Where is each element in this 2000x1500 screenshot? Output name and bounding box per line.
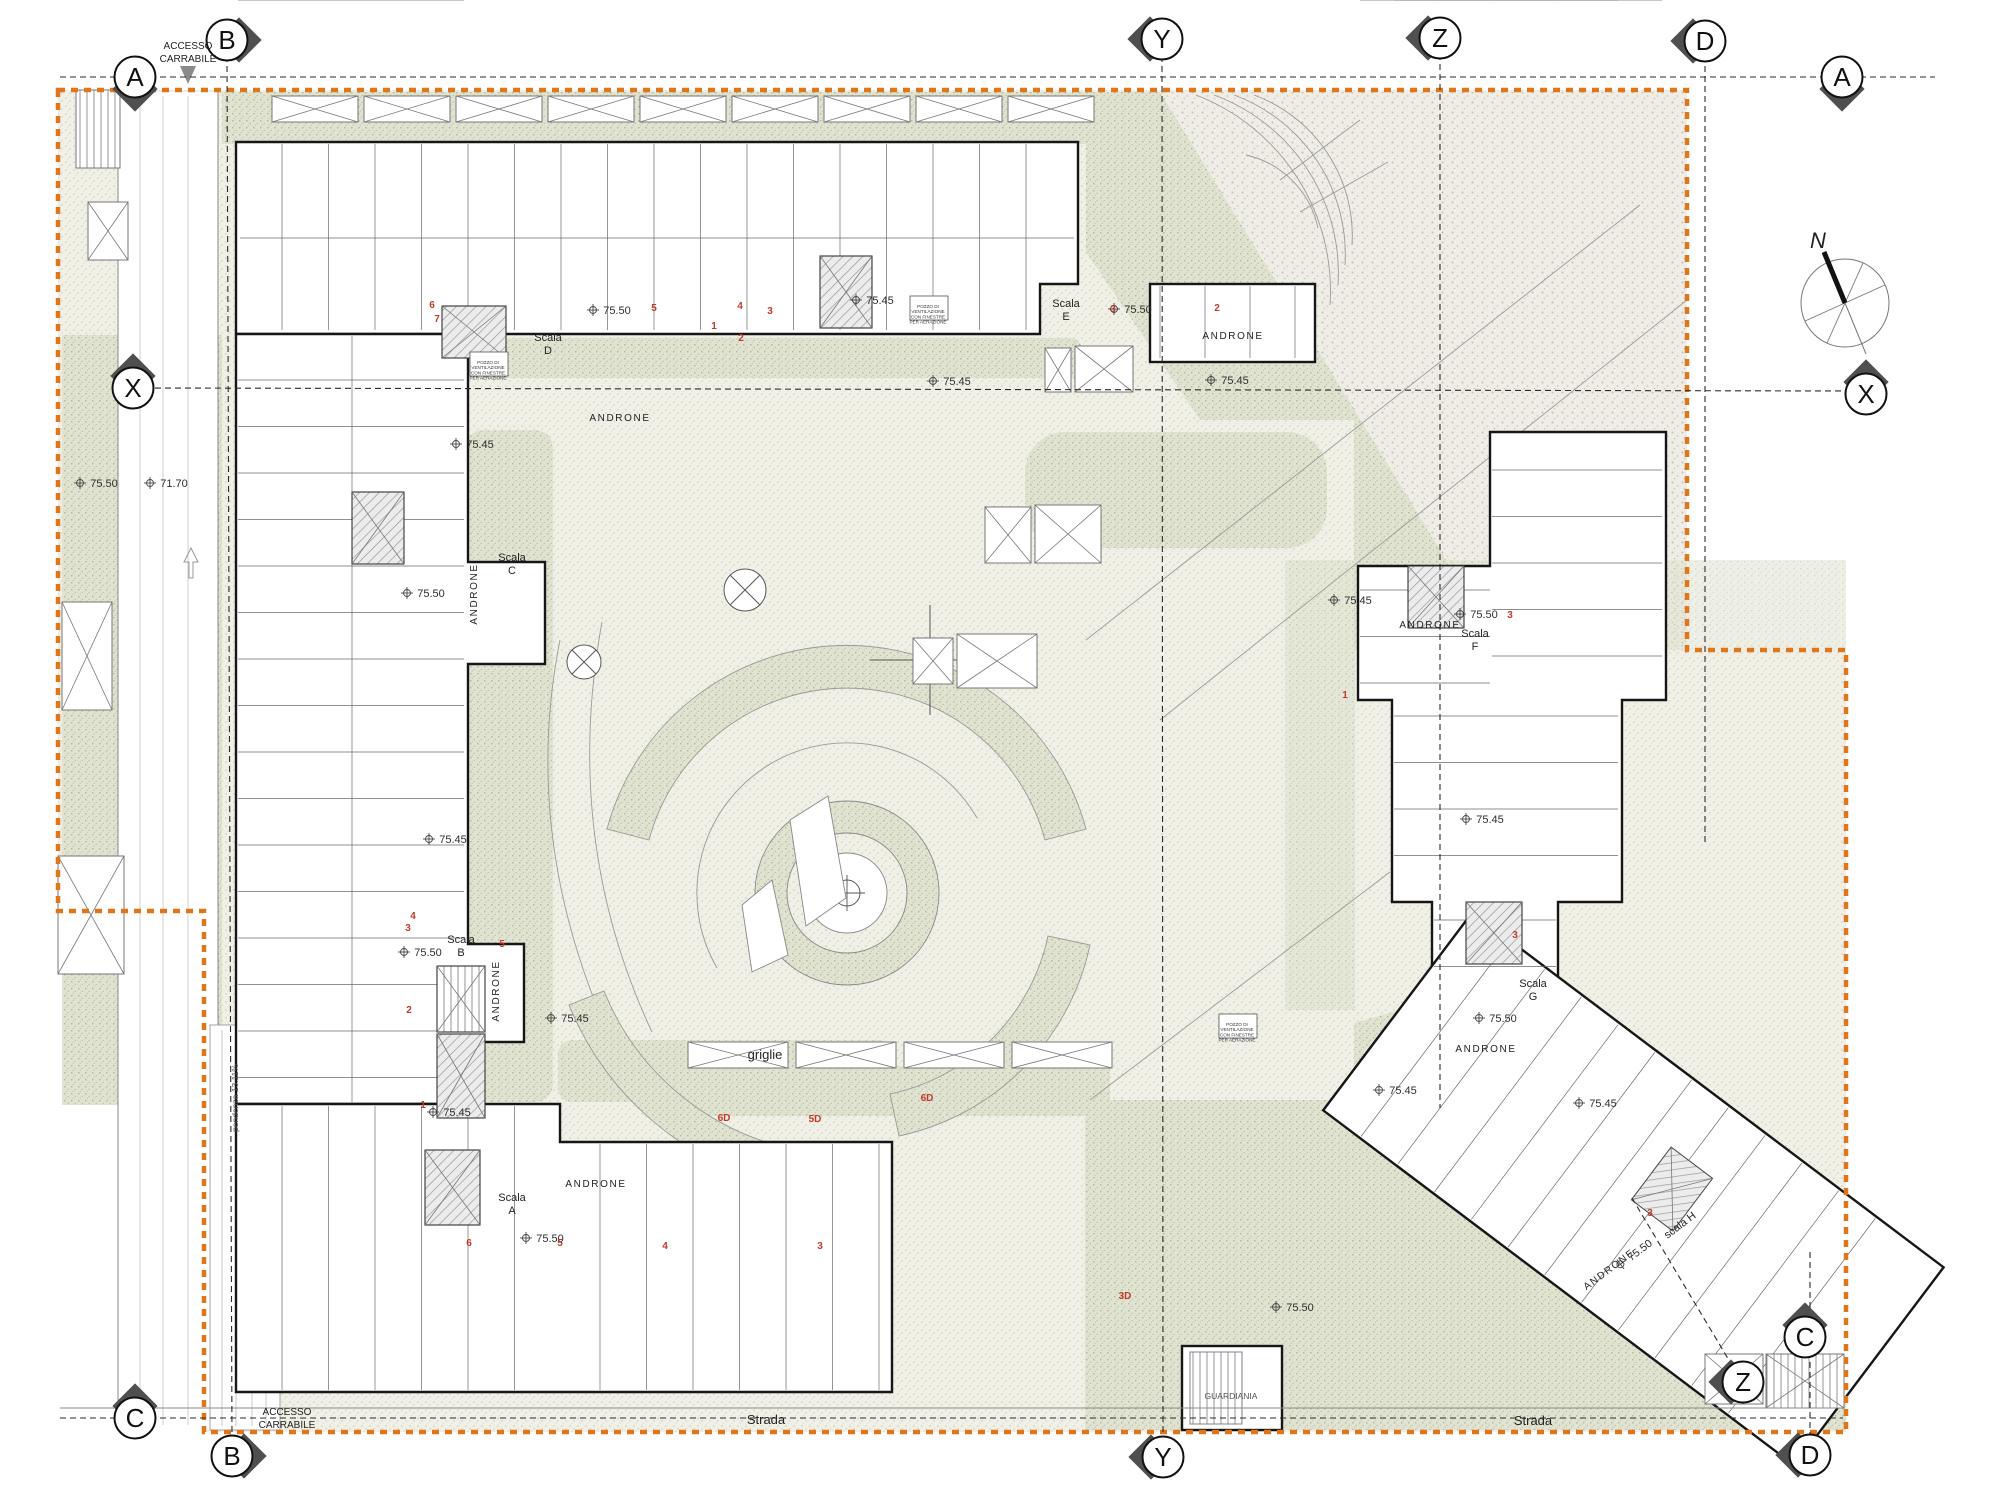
unit-no: 3 xyxy=(1512,930,1518,941)
grille-strip-box xyxy=(732,96,818,122)
vent-grille-box xyxy=(58,856,124,974)
grille-strip-box xyxy=(916,96,1002,122)
unit-no: 4 xyxy=(662,1241,668,1252)
grid-marker-d-top: D xyxy=(1670,18,1725,63)
androne-f: ANDRONE xyxy=(1399,620,1460,631)
unit-no: 1 xyxy=(711,321,717,332)
unit-no: 3 xyxy=(1110,304,1116,315)
grid-marker-letter: A xyxy=(126,62,144,92)
grid-marker-x-right: X xyxy=(1843,359,1888,414)
access-road-west xyxy=(118,66,218,1430)
androne-d: ANDRONE xyxy=(589,413,650,424)
grid-marker-letter: B xyxy=(223,1441,240,1471)
grid-marker-letter: Y xyxy=(1153,24,1170,54)
elev: 75.45 xyxy=(1344,595,1372,607)
androne-g: ANDRONE xyxy=(1455,1044,1516,1055)
grid-marker-letter: D xyxy=(1801,1440,1820,1470)
unit-no: 4 xyxy=(410,911,416,922)
grille-strip-box xyxy=(272,96,358,122)
elev: 75.50 xyxy=(603,305,631,317)
androne-a: ANDRONE xyxy=(565,1179,626,1190)
grid-marker-a-right: A xyxy=(1819,57,1864,112)
grille-strip-box xyxy=(796,1042,896,1068)
grille-strip-box xyxy=(640,96,726,122)
unit-no: 5 xyxy=(651,303,657,314)
elev: 75.45 xyxy=(866,295,894,307)
elev: 75.45 xyxy=(943,376,971,388)
accesso-carrabile-top: ACCESSOCARRABILE xyxy=(160,41,217,65)
unit-no: 6 xyxy=(429,300,435,311)
site-plan-svg: ABYZDAXXCBYZCD ACCESSOCARRABILEACCESSOCA… xyxy=(0,0,2000,1500)
stair-core xyxy=(1408,566,1464,628)
elev: 75.45 xyxy=(1221,375,1249,387)
grid-marker-letter: A xyxy=(1833,62,1851,92)
unit-no: 5 xyxy=(557,1238,563,1249)
strada-label-left: Strada xyxy=(747,1412,786,1427)
elev: 75.50 xyxy=(414,947,442,959)
unit-no: 3 xyxy=(1507,610,1513,621)
north-label: N xyxy=(1810,228,1826,253)
grid-marker-y-top: Y xyxy=(1127,16,1182,61)
vent-grille-box xyxy=(1045,348,1071,392)
building-north-wing xyxy=(236,142,1078,334)
griglie-label: griglie xyxy=(748,1047,783,1062)
grille-strip-box xyxy=(904,1042,1004,1068)
androne-b: ANDRONE xyxy=(491,960,502,1021)
unit-no: 1 xyxy=(1342,690,1348,701)
stair-core xyxy=(437,966,485,1032)
elev: 75.45 xyxy=(439,834,467,846)
stair-core xyxy=(425,1150,480,1225)
unit-no: 3 xyxy=(817,1241,823,1252)
grid-marker-letter: B xyxy=(218,25,235,55)
stair-core xyxy=(820,256,872,328)
vent-grille-box xyxy=(913,638,953,684)
androne-c: ANDRONE xyxy=(469,563,480,624)
grid-marker-z-top: Z xyxy=(1405,15,1460,60)
vent-grille-box xyxy=(957,634,1037,688)
elev: 75.45 xyxy=(1476,814,1504,826)
unit-no: 4 xyxy=(737,301,743,312)
strada-label-right: Strada xyxy=(1514,1413,1553,1428)
guard-house xyxy=(1182,1346,1282,1430)
grid-marker-letter: D xyxy=(1696,26,1715,56)
elev: 71.70 xyxy=(160,478,188,490)
elev: 75.50 xyxy=(90,478,118,490)
grille-strip-box xyxy=(1008,96,1094,122)
elev: 75.50 xyxy=(417,588,445,600)
elev: 75.45 xyxy=(466,439,494,451)
unit-no: 5 xyxy=(499,939,505,950)
unit-no: 3 xyxy=(767,306,773,317)
building-south-wing xyxy=(236,1104,892,1392)
vent-grille-box xyxy=(62,602,112,710)
unit-no: 3D xyxy=(1119,1291,1132,1302)
building-north-annex xyxy=(1150,284,1315,362)
grid-marker-letter: X xyxy=(124,373,141,403)
grille-strip-box xyxy=(548,96,634,122)
grid-marker-b-bottom: B xyxy=(212,1433,267,1478)
elev: 75.45 xyxy=(1389,1085,1417,1097)
grille-strip-box xyxy=(364,96,450,122)
grid-marker-letter: Y xyxy=(1154,1442,1171,1472)
vent-grille-box xyxy=(1075,346,1133,392)
unit-no: 7 xyxy=(434,314,440,325)
unit-no: 2 xyxy=(1214,303,1220,314)
unit-no: 2 xyxy=(406,1005,412,1016)
unit-no: 2 xyxy=(738,333,744,344)
elev: 75.50 xyxy=(1124,304,1152,316)
elev: 75.45 xyxy=(443,1107,471,1119)
grille-strip-box xyxy=(1012,1042,1112,1068)
unit-no: 1 xyxy=(420,1100,426,1111)
vent-grille-box xyxy=(88,202,128,260)
north-compass-icon xyxy=(1801,252,1889,354)
elev: 75.50 xyxy=(1470,609,1498,621)
unit-no: 6 xyxy=(466,1238,472,1249)
grid-marker-letter: X xyxy=(1857,379,1874,409)
vent-grille-box xyxy=(985,507,1031,563)
guardiania-label: GUARDIANIA xyxy=(1205,1391,1258,1401)
entry-arrow-icon xyxy=(180,66,196,84)
grid-marker-y-bottom: Y xyxy=(1128,1434,1183,1479)
stair-core xyxy=(442,306,506,358)
elev: 75.45 xyxy=(561,1013,589,1025)
grid-marker-letter: C xyxy=(1796,1322,1815,1352)
grille-strip-box xyxy=(456,96,542,122)
elev: 75.50 xyxy=(1489,1013,1517,1025)
elev: 75.45 xyxy=(1589,1098,1617,1110)
unit-no: 5D xyxy=(809,1114,822,1125)
elev: 75.50 xyxy=(1286,1302,1314,1314)
stair-core xyxy=(352,492,404,564)
stair-core xyxy=(437,1034,485,1118)
unit-no: 6D xyxy=(921,1093,934,1104)
unit-no: 3 xyxy=(405,923,411,934)
androne-e: ANDRONE xyxy=(1202,331,1263,342)
vent-grille-box xyxy=(1035,505,1101,563)
floor-plan-canvas: ABYZDAXXCBYZCD ACCESSOCARRABILEACCESSOCA… xyxy=(0,0,2000,1500)
unit-no: 6D xyxy=(718,1113,731,1124)
pendenza-label: pendenza 13.11% xyxy=(230,1064,240,1132)
grid-marker-letter: Z xyxy=(1735,1367,1751,1397)
grid-marker-letter: Z xyxy=(1432,23,1448,53)
grille-strip-box xyxy=(824,96,910,122)
grid-marker-letter: C xyxy=(126,1403,145,1433)
unit-no: 3 xyxy=(1647,1208,1653,1219)
